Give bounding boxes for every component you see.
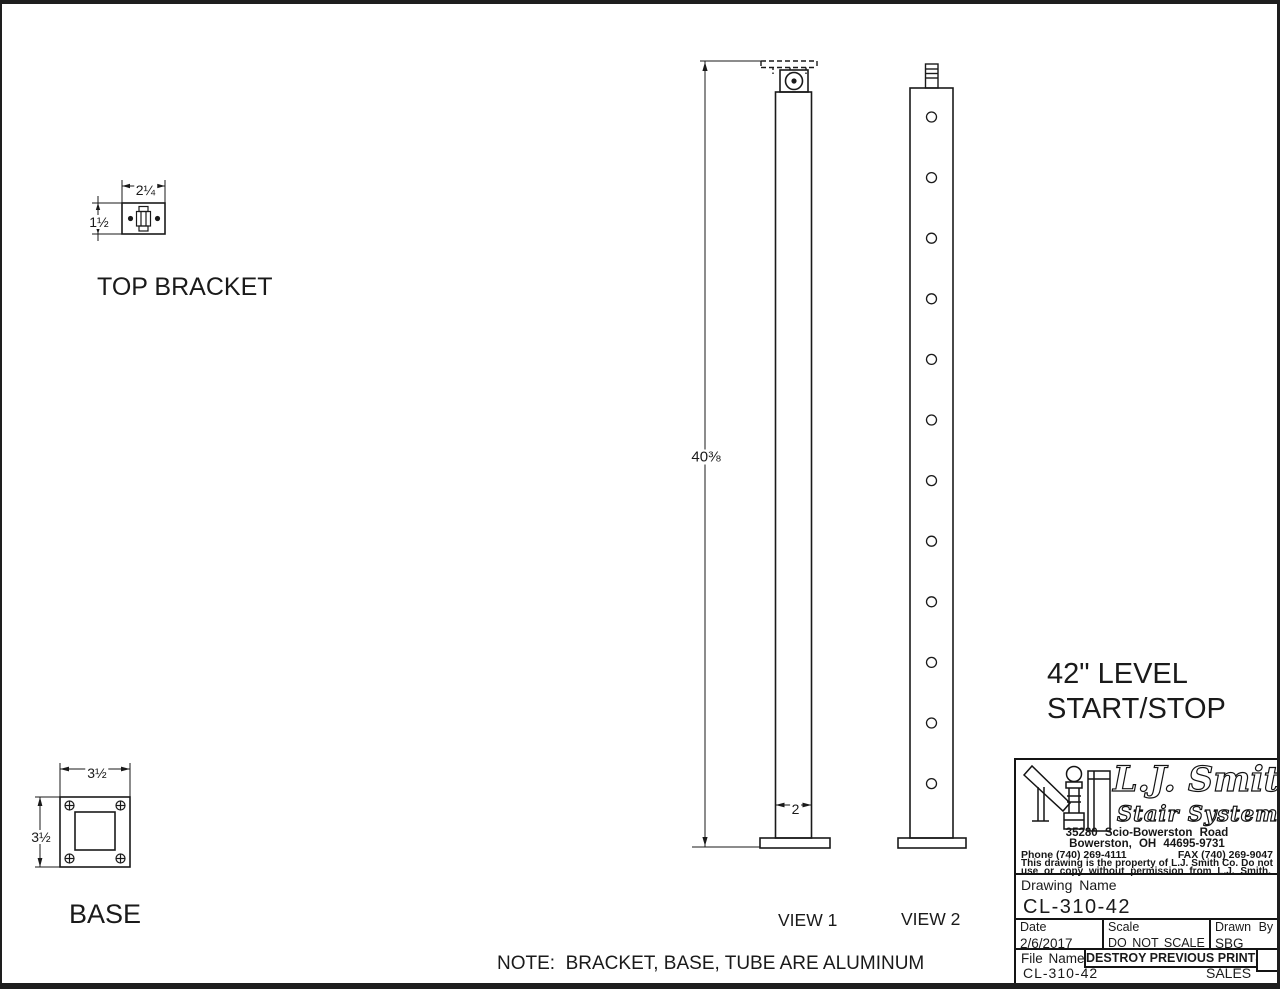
drawing-name-value: CL-310-42 (1023, 896, 1131, 919)
cable-hole-icon (927, 597, 937, 607)
scale-cell: Scale DO NOT SCALE (1104, 920, 1211, 948)
screw-hole-icon (65, 801, 74, 810)
title-block-logo-section: L.J. Smith Stair Systems 35280 Scio-Bowe… (1016, 760, 1278, 875)
view2-label: VIEW 2 (901, 909, 960, 930)
file-name-label: File Name (1021, 951, 1085, 966)
cable-hole-icon (927, 354, 937, 364)
view1-pivot-pin-icon (791, 78, 796, 83)
size-callout-line2: START/STOP (1047, 692, 1226, 727)
department-value: SALES (1206, 965, 1251, 981)
drawing-name-label: Drawing Name (1021, 877, 1117, 893)
drawing-name-section: Drawing Name CL-310-42 (1016, 875, 1278, 920)
cable-hole-icon (927, 718, 937, 728)
view1-label: VIEW 1 (778, 910, 837, 931)
cable-hole-icon (927, 536, 937, 546)
base-detail (35, 763, 130, 867)
material-note: NOTE: BRACKET, BASE, TUBE ARE ALUMINUM (497, 953, 924, 975)
view2-top-stud (926, 64, 939, 88)
screw-hole-icon (116, 801, 125, 810)
stair-newel-logo-icon (1022, 763, 1114, 835)
title-block: L.J. Smith Stair Systems 35280 Scio-Bowe… (1014, 758, 1280, 988)
size-callout-line1: 42" LEVEL (1047, 657, 1226, 692)
view2-drawing (898, 64, 966, 848)
view1-post-outline (776, 92, 812, 838)
date-label: Date (1020, 921, 1098, 935)
view1-width-dim: 2 (790, 802, 802, 816)
view2-post-outline (910, 88, 953, 838)
bracket-pivot-detail (137, 207, 151, 232)
cable-hole-icon (927, 294, 937, 304)
base-inner-square (75, 812, 115, 850)
cable-hole-icon (927, 476, 937, 486)
meta-row: Date 2/6/2017 Scale DO NOT SCALE Drawn B… (1016, 920, 1278, 950)
base-width-dim: 3½ (85, 766, 108, 780)
cable-hole-icon (927, 779, 937, 789)
drawn-by-label: Drawn By (1215, 921, 1274, 935)
logo-name: L.J. Smith (1113, 762, 1280, 797)
file-name-value: CL-310-42 (1023, 965, 1098, 981)
view1-height-dim: 40⅜ (689, 450, 722, 465)
logo-subtitle: Stair Systems (1117, 803, 1280, 824)
file-row: File Name DESTROY PREVIOUS PRINTS CL-310… (1016, 950, 1278, 981)
drawing-sheet: 2¼ 1½ TOP BRACKET 3½ 3½ BASE 40⅜ 2 VIEW … (0, 0, 1280, 989)
cable-hole-icon (927, 657, 937, 667)
base-screw-icons (65, 801, 125, 863)
bracket-hole-left-icon (128, 216, 133, 221)
size-callout: 42" LEVEL START/STOP (1047, 657, 1226, 727)
view1-base-plate (760, 838, 830, 848)
top-bracket-height-dim: 1½ (87, 215, 110, 229)
cable-hole-icon (927, 112, 937, 122)
base-plate-outline (60, 797, 130, 867)
screw-hole-icon (65, 854, 74, 863)
cable-hole-icon (927, 415, 937, 425)
top-bracket-width-dim: 2¼ (134, 183, 157, 197)
base-height-dim: 3½ (29, 830, 52, 844)
bracket-hole-right-icon (155, 216, 160, 221)
base-title: BASE (69, 899, 141, 930)
cable-hole-icon (927, 173, 937, 183)
corner-box (1256, 948, 1280, 972)
cable-hole-icon (927, 233, 937, 243)
drawn-by-cell: Drawn By SBG (1211, 920, 1278, 948)
view2-holes (927, 112, 937, 789)
scale-label: Scale (1108, 921, 1205, 935)
date-cell: Date 2/6/2017 (1016, 920, 1104, 948)
screw-hole-icon (116, 854, 125, 863)
top-bracket-title: TOP BRACKET (97, 273, 273, 302)
view2-base-plate (898, 838, 966, 848)
